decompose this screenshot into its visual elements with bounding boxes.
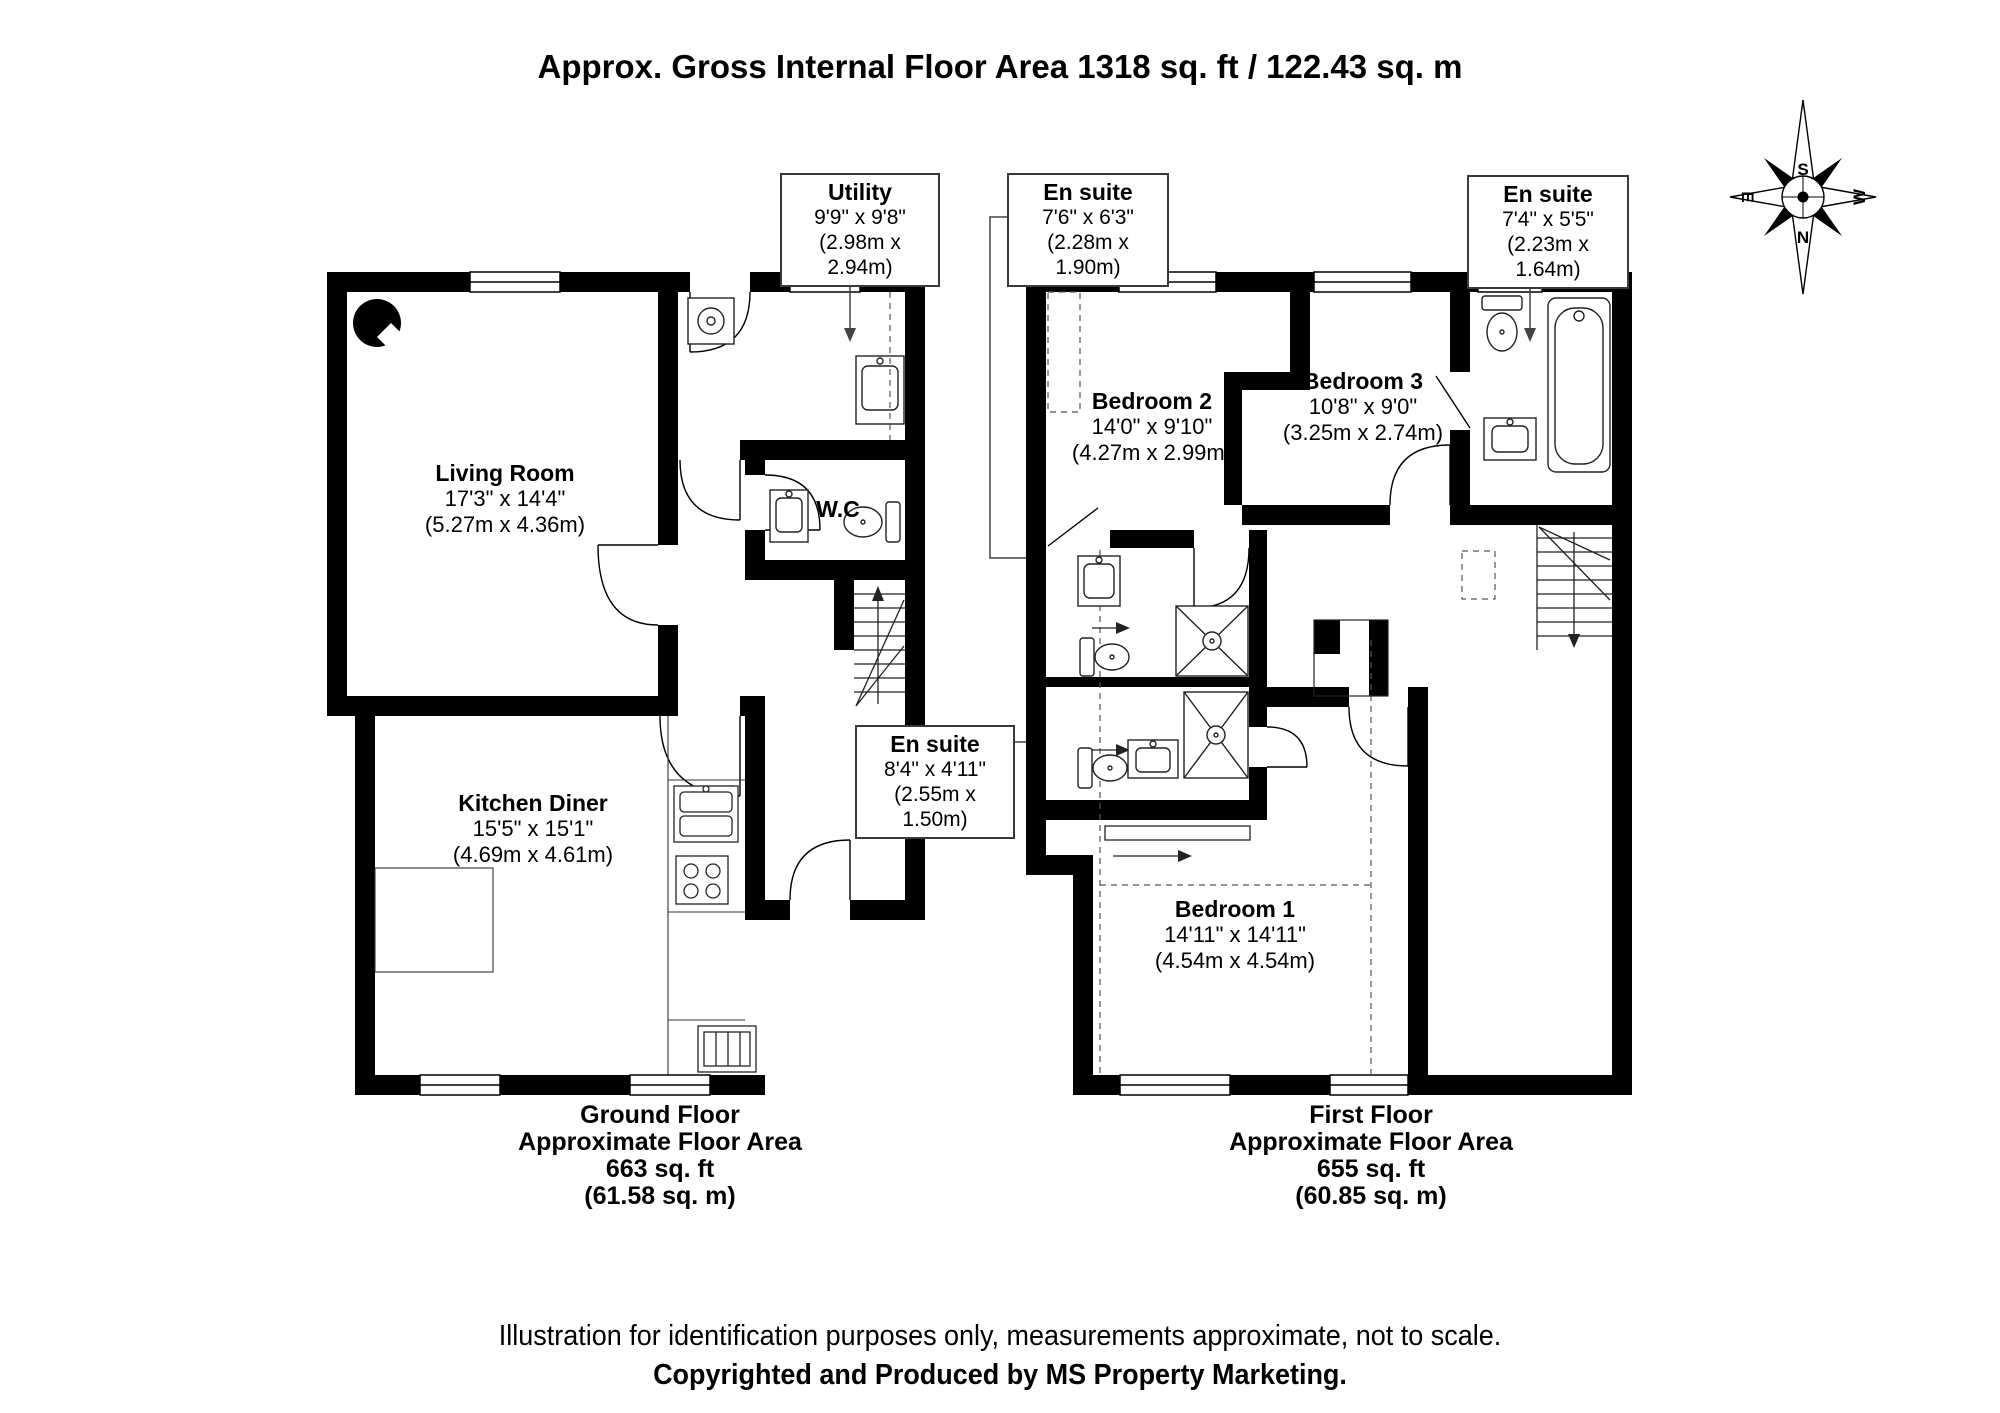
dishwasher-icon [698, 1026, 756, 1072]
compass-letter-s: S [1797, 160, 1808, 179]
ensuite-b-shower-icon [1184, 692, 1248, 778]
washing-machine-icon [688, 298, 734, 344]
radiator [1105, 826, 1250, 862]
wc-label: W.C [788, 496, 888, 522]
ensuite-c-toilet-icon [1482, 296, 1522, 351]
floorplan-page: Approx. Gross Internal Floor Area 1318 s… [0, 0, 2000, 1413]
ensuite-a-sink-icon [1078, 556, 1120, 606]
hob-icon [676, 856, 728, 904]
compass-rose: S N E W [1730, 100, 1876, 294]
kitchen-sink-icon [674, 786, 738, 842]
living-room-label: Living Room 17'3" x 14'4" (5.27m x 4.36m… [355, 460, 655, 538]
fireplace-icon [353, 299, 405, 351]
disclaimer-line-2: Copyrighted and Produced by MS Property … [70, 1359, 1930, 1392]
ground-floor-footer: Ground Floor Approximate Floor Area 663 … [430, 1102, 890, 1210]
disclaimer: Illustration for identification purposes… [0, 1320, 2000, 1392]
ground-floor-plan [327, 257, 925, 1095]
ensuite-top-right-callout: En suite 7'4" x 5'5" (2.23m x 1.64m) [1467, 175, 1629, 289]
utility-callout: Utility 9'9" x 9'8" (2.98m x 2.94m) [780, 173, 940, 287]
ensuite-callout-arrowhead [1524, 328, 1536, 342]
compass-letter-n: N [1797, 228, 1809, 247]
ensuite-b-sink-icon [1128, 740, 1178, 778]
first-floor-footer: First Floor Approximate Floor Area 655 s… [1141, 1102, 1601, 1210]
bath-icon [1548, 298, 1610, 472]
compass-letter-e: E [1738, 191, 1757, 202]
ensuite-a-shower-icon [1176, 606, 1248, 676]
ensuite-top-left-callout: En suite 7'6" x 6'3" (2.28m x 1.90m) [1007, 173, 1169, 287]
compass-letter-w: W [1850, 188, 1869, 205]
stairs-up-icon [854, 586, 905, 706]
stairs-down-icon [1537, 525, 1612, 650]
ensuite-middle-callout: En suite 8'4" x 4'11" (2.55m x 1.50m) [855, 725, 1015, 839]
headroom-arrows [1092, 622, 1130, 756]
utility-sink-icon [856, 356, 904, 424]
kitchen-diner-label: Kitchen Diner 15'5" x 15'1" (4.69m x 4.6… [383, 790, 683, 868]
ensuite-a-toilet-icon [1080, 638, 1129, 676]
bedroom-3-label: Bedroom 3 10'8" x 9'0" (3.25m x 2.74m) [1213, 368, 1513, 446]
floorplan-drawing: S N E W [0, 0, 2000, 1413]
disclaimer-line-1: Illustration for identification purposes… [70, 1320, 1930, 1353]
bedroom-1-label: Bedroom 1 14'11" x 14'11" (4.54m x 4.54m… [1085, 896, 1385, 974]
